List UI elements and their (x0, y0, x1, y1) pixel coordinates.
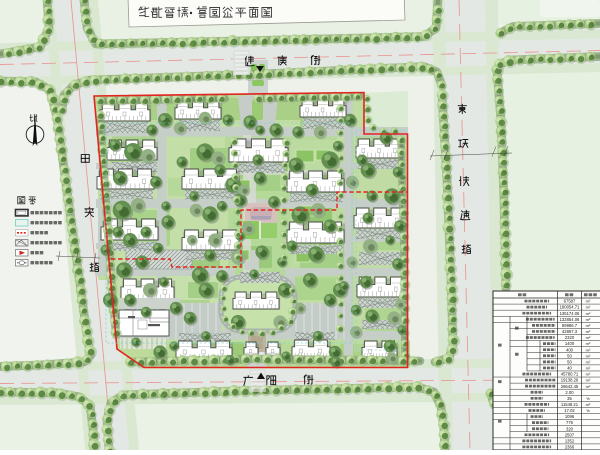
svg-text:35: 35 (567, 396, 572, 401)
svg-text:26642.45: 26642.45 (561, 384, 579, 389)
svg-text:50: 50 (567, 353, 572, 358)
svg-text:m²: m² (586, 384, 591, 389)
svg-text:11548.21: 11548.21 (561, 402, 579, 407)
svg-text:m²: m² (586, 299, 591, 304)
svg-text:m²: m² (586, 372, 591, 377)
svg-text:2366: 2366 (565, 445, 575, 450)
svg-text:2507: 2507 (565, 432, 575, 437)
svg-text:m²: m² (586, 329, 591, 334)
svg-text:67587: 67587 (564, 299, 576, 304)
svg-text:17.02: 17.02 (564, 408, 575, 413)
svg-text:50: 50 (567, 359, 572, 364)
svg-text:m²: m² (586, 359, 591, 364)
svg-text:776: 776 (566, 420, 574, 425)
svg-text:m²: m² (586, 323, 591, 328)
svg-text:m²: m² (586, 305, 591, 310)
svg-text:180054.71: 180054.71 (560, 305, 580, 310)
svg-text:135174.06: 135174.06 (560, 311, 580, 316)
svg-text:m²: m² (586, 341, 591, 346)
svg-text:89986.7: 89986.7 (562, 323, 578, 328)
svg-text:320: 320 (566, 426, 574, 431)
svg-text:m²: m² (586, 311, 591, 316)
svg-text:m²: m² (586, 353, 591, 358)
svg-text:2.00: 2.00 (565, 390, 574, 395)
svg-text:2320: 2320 (565, 335, 575, 340)
svg-text:m²: m² (586, 366, 591, 371)
svg-text:132854.06: 132854.06 (560, 317, 580, 322)
svg-text:m²: m² (586, 317, 591, 322)
svg-text:1400: 1400 (565, 341, 575, 346)
svg-text:400: 400 (566, 347, 574, 352)
svg-text:1352: 1352 (565, 438, 575, 443)
svg-text:40: 40 (567, 366, 572, 371)
svg-text:1096: 1096 (565, 414, 575, 419)
svg-text:m²: m² (586, 402, 591, 407)
svg-text:m²: m² (586, 347, 591, 352)
svg-text:%: % (586, 408, 590, 413)
svg-text:45780.71: 45780.71 (561, 372, 579, 377)
svg-text:%: % (586, 396, 590, 401)
svg-text:m²: m² (586, 335, 591, 340)
svg-text:m²: m² (586, 378, 591, 383)
svg-text:19138.26: 19138.26 (561, 378, 579, 383)
svg-text:42867.3: 42867.3 (562, 329, 578, 334)
